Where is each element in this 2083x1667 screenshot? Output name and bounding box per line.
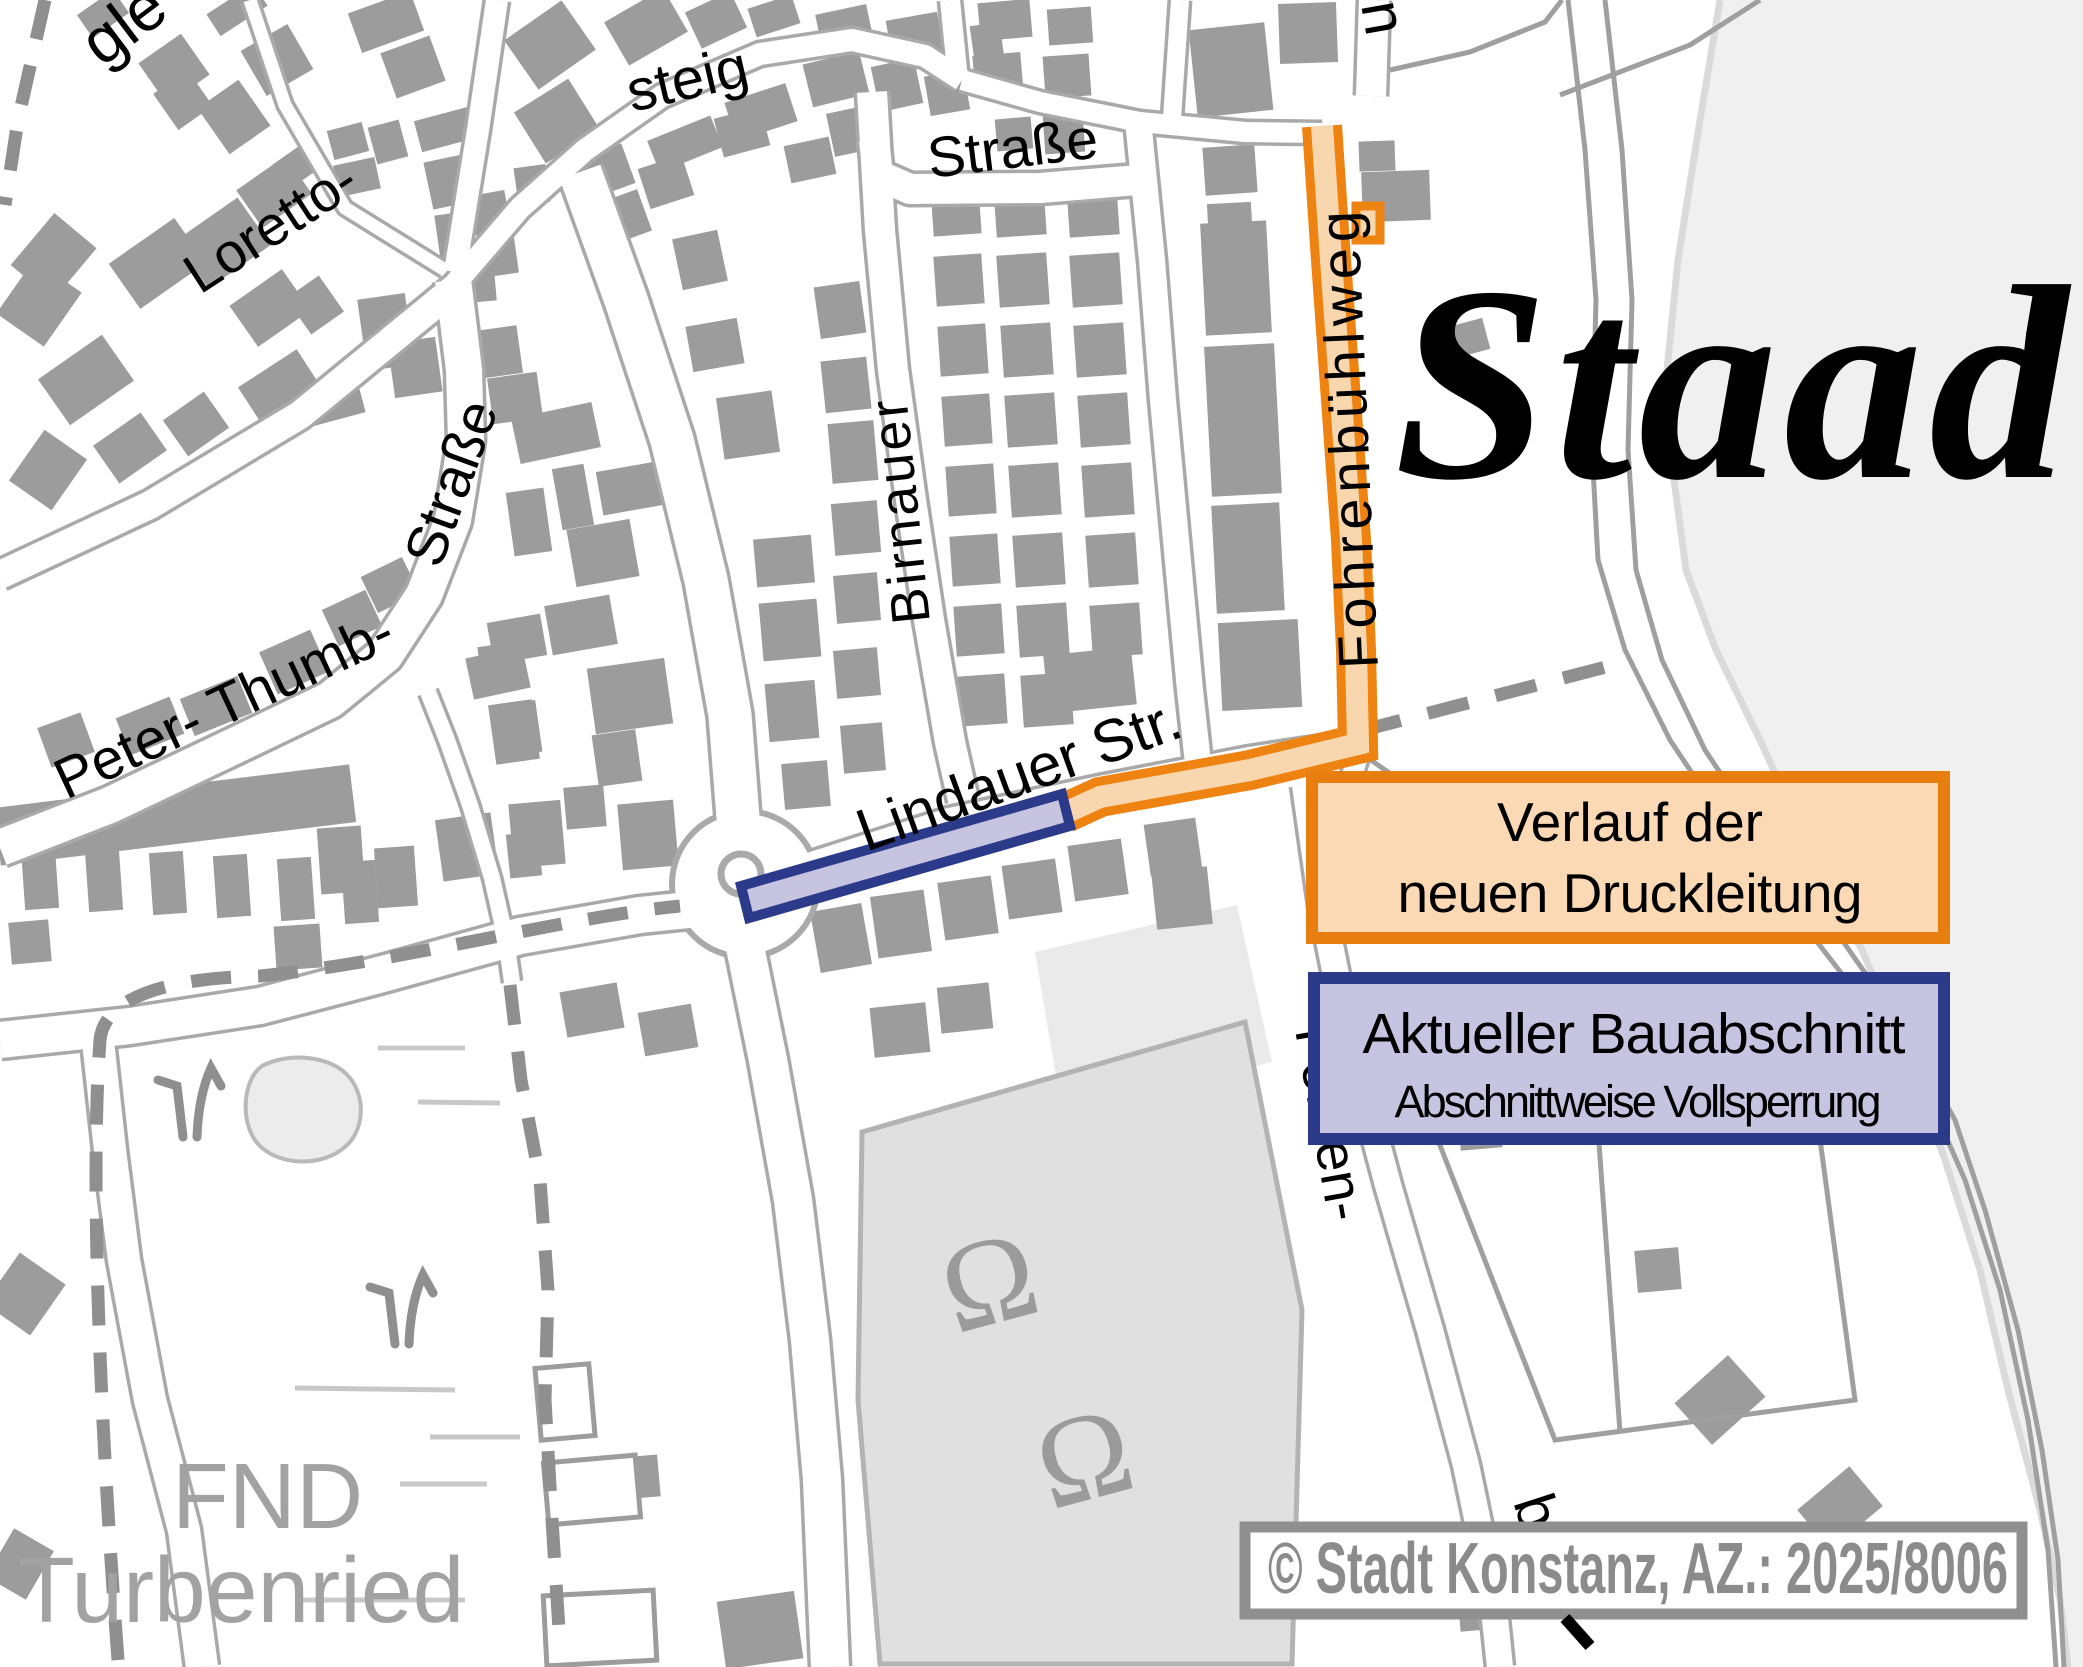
svg-text:neuen Druckleitung: neuen Druckleitung <box>1398 862 1863 924</box>
svg-text:Turbenried: Turbenried <box>18 1538 464 1642</box>
svg-text:Staad: Staad <box>1394 230 2072 538</box>
svg-text:FND: FND <box>172 1444 363 1548</box>
svg-text:Aktueller Bauabschnitt: Aktueller Bauabschnitt <box>1363 1002 1906 1066</box>
svg-text:Verlauf der: Verlauf der <box>1497 791 1763 853</box>
svg-text:Abschnittweise Vollsperrung: Abschnittweise Vollsperrung <box>1395 1076 1882 1127</box>
svg-text:© Stadt Konstanz, AZ.: 2025/80: © Stadt Konstanz, AZ.: 2025/8006 <box>1268 1529 2008 1609</box>
